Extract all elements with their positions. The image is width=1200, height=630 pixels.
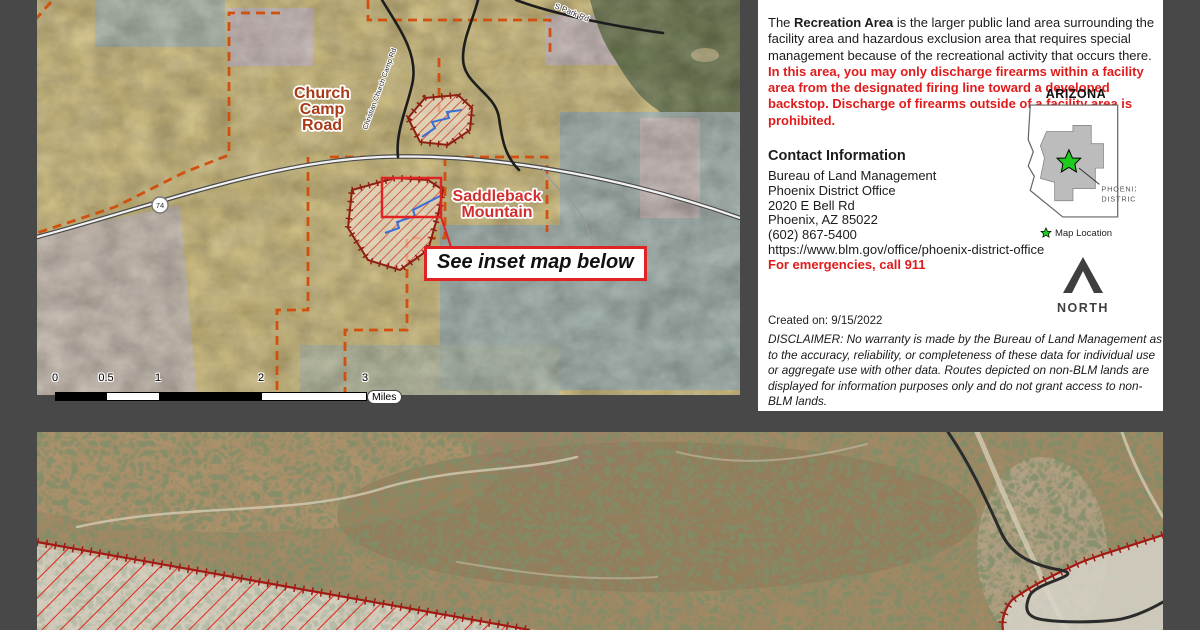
intro-text: The [768,15,794,30]
info-panel: The Recreation Area is the larger public… [758,0,1163,411]
callout-see-inset: See inset map below [424,246,647,281]
scale-bar: 0 0.5 1 2 3 Miles [55,383,385,395]
scale-bar-segments [55,392,367,401]
contact-line: 2020 E Bell Rd [768,199,1048,214]
route-shield: 74 [152,197,168,213]
scale-tick: 0.5 [98,372,113,384]
legend-label: Map Location [1055,228,1112,239]
contact-line: Bureau of Land Management [768,169,1048,184]
scale-tick: 2 [258,372,264,384]
disclaimer-text: DISCLAIMER: No warranty is made by the B… [768,332,1166,410]
legend-star-icon [1040,227,1052,239]
contact-heading: Contact Information [768,148,1048,164]
arizona-state-map: PHOENIX DISTRICT [1016,101,1136,221]
svg-text:DISTRICT: DISTRICT [1101,195,1136,204]
main-map-panel: 74 Church Camp Road Saddleback Mountain … [37,0,740,395]
phoenix-district-label: PHOENIX [1101,185,1136,194]
contact-information: Contact Information Bureau of Land Manag… [768,148,1048,273]
intro-bold-term: Recreation Area [794,15,893,30]
scale-tick: 1 [155,372,161,384]
svg-text:Mountain: Mountain [461,204,532,221]
scale-tick: 0 [52,372,58,384]
contact-line: Phoenix District Office [768,184,1048,199]
svg-text:Road: Road [302,117,342,134]
terrain-svg: 74 Church Camp Road Saddleback Mountain … [37,0,740,395]
north-label: NORTH [1057,301,1109,315]
created-date: Created on: 9/15/2022 [768,315,882,327]
arizona-title: ARIZONA [1010,87,1142,101]
svg-text:Camp: Camp [300,101,345,118]
facility-area-church [408,95,472,145]
map-document: 74 Church Camp Road Saddleback Mountain … [0,0,1200,630]
church-camp-road-label: Church [294,85,350,102]
contact-line: Phoenix, AZ 85022 [768,213,1048,228]
aerial-svg [37,432,1163,630]
saddleback-mountain-label: Saddleback [453,188,542,205]
map-location-legend: Map Location [1010,227,1142,239]
aerial-inset-panel [37,432,1163,630]
emergency-notice: For emergencies, call 911 [768,258,1048,273]
north-arrow: NORTH [1057,255,1109,315]
north-arrow-icon [1057,255,1109,295]
arizona-inset-map: ARIZONA PHOENIX DISTRICT Map Location [1010,87,1142,239]
route-shield-number: 74 [156,201,164,210]
contact-phone: (602) 867-5400 [768,228,1048,243]
scale-tick: 3 [362,372,368,384]
scale-unit-label: Miles [367,390,402,404]
contact-url[interactable]: https://www.blm.gov/office/phoenix-distr… [768,243,1048,258]
